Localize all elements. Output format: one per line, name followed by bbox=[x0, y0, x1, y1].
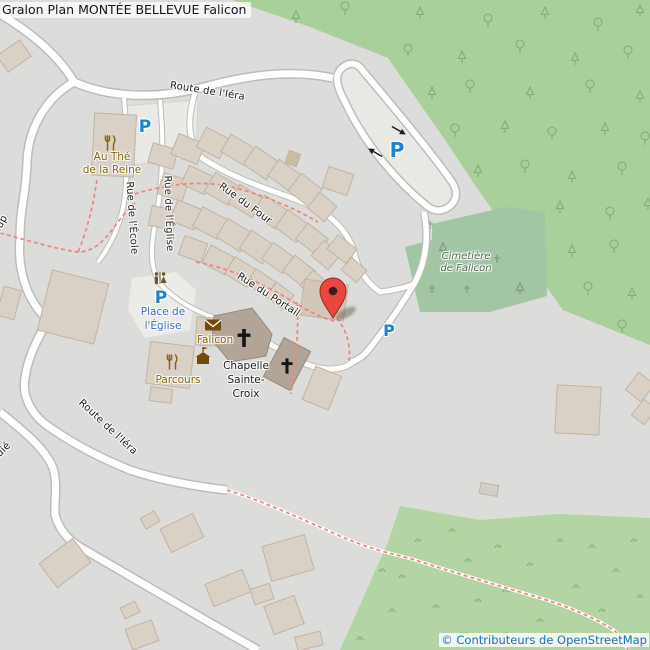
map-title: Gralon Plan MONTÉE BELLEVUE Falicon bbox=[0, 2, 251, 18]
map-tiles bbox=[0, 0, 650, 650]
town-hall-icon bbox=[196, 347, 211, 364]
scrub-area bbox=[340, 506, 650, 650]
post-office-icon bbox=[205, 320, 221, 331]
attribution-link[interactable]: © Contributeurs de OpenStreetMap bbox=[439, 633, 649, 647]
map-canvas[interactable]: Route de l'Iéra Rue de l'École Rue de l'… bbox=[0, 0, 650, 650]
